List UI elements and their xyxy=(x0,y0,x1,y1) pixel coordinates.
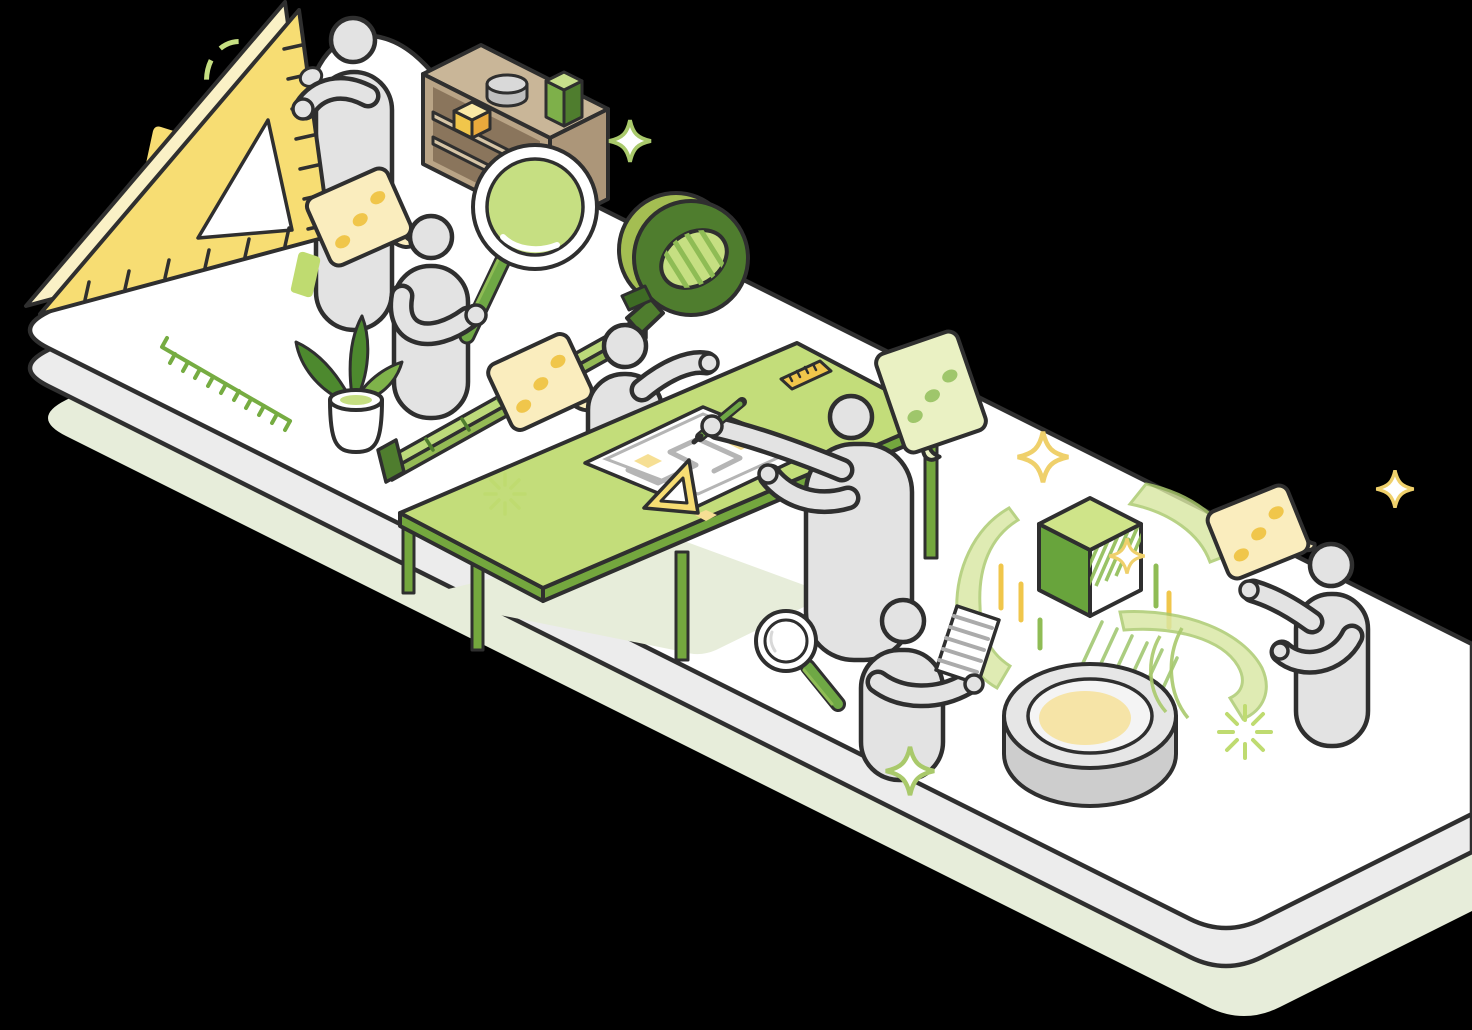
person-4-head xyxy=(830,396,872,438)
plant-soil xyxy=(340,395,372,405)
person-5-hand xyxy=(965,675,983,693)
shelf-cylinder xyxy=(487,75,527,106)
person-5-body xyxy=(861,650,943,780)
person-6-head xyxy=(1310,544,1352,586)
person-4-hand-pen xyxy=(702,416,722,436)
puck-glow xyxy=(1039,691,1131,745)
isometric-illustration xyxy=(0,0,1472,1030)
person-1-hand xyxy=(293,99,313,119)
illustration-canvas xyxy=(0,0,1472,1030)
person-4-hand-rest xyxy=(759,465,777,483)
person-2-head xyxy=(410,216,452,258)
shelf-box-green xyxy=(546,72,582,126)
magnifier-lens xyxy=(487,159,583,255)
person-3-head xyxy=(604,325,646,367)
person-3-hand xyxy=(700,354,718,372)
person-6-hand-left xyxy=(1240,581,1258,599)
person-2-hand xyxy=(466,305,486,325)
shelf-cube-yellow xyxy=(454,102,490,138)
person-5-head xyxy=(882,600,924,642)
scanner-puck xyxy=(1004,664,1176,806)
person-6-hand-right xyxy=(1272,643,1288,659)
person-1-head xyxy=(331,18,375,62)
